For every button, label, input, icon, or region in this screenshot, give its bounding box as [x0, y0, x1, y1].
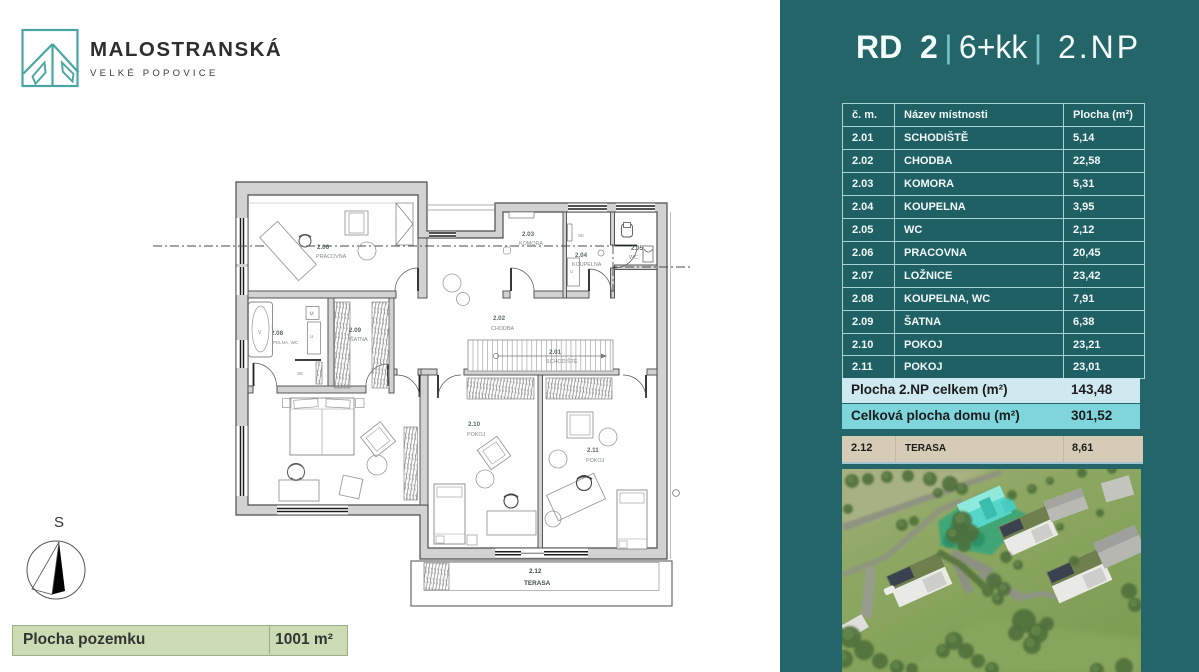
svg-text:SK: SK	[297, 371, 304, 376]
svg-text:2.05: 2.05	[631, 245, 644, 252]
svg-text:S: S	[54, 514, 64, 531]
svg-text:ŠATNA: ŠATNA	[350, 336, 368, 343]
svg-text:U: U	[570, 269, 573, 274]
svg-text:2.09: 2.09	[349, 327, 362, 334]
svg-text:SK: SK	[578, 233, 585, 238]
svg-text:2.11: 2.11	[587, 447, 599, 454]
svg-text:2.01: 2.01	[549, 349, 562, 356]
svg-text:M: M	[310, 312, 314, 318]
svg-text:SCHODIŠTĚ: SCHODIŠTĚ	[546, 357, 578, 365]
svg-text:2.02: 2.02	[493, 315, 506, 322]
svg-text:2.10: 2.10	[468, 421, 481, 428]
svg-text:2.03: 2.03	[522, 231, 535, 238]
svg-text:PRACOVNA: PRACOVNA	[316, 254, 347, 260]
svg-text:TERASA: TERASA	[524, 580, 551, 587]
svg-text:POKOJ: POKOJ	[467, 432, 486, 438]
svg-text:2.06: 2.06	[317, 244, 330, 251]
svg-text:WC: WC	[629, 255, 638, 261]
svg-text:POKOJ: POKOJ	[586, 458, 605, 464]
svg-text:CHODBA: CHODBA	[491, 326, 514, 332]
svg-text:KOUPELNA: KOUPELNA	[572, 262, 602, 268]
svg-text:KOMORA: KOMORA	[519, 241, 543, 247]
svg-text:U: U	[310, 334, 313, 339]
svg-text:2.12: 2.12	[529, 568, 542, 575]
